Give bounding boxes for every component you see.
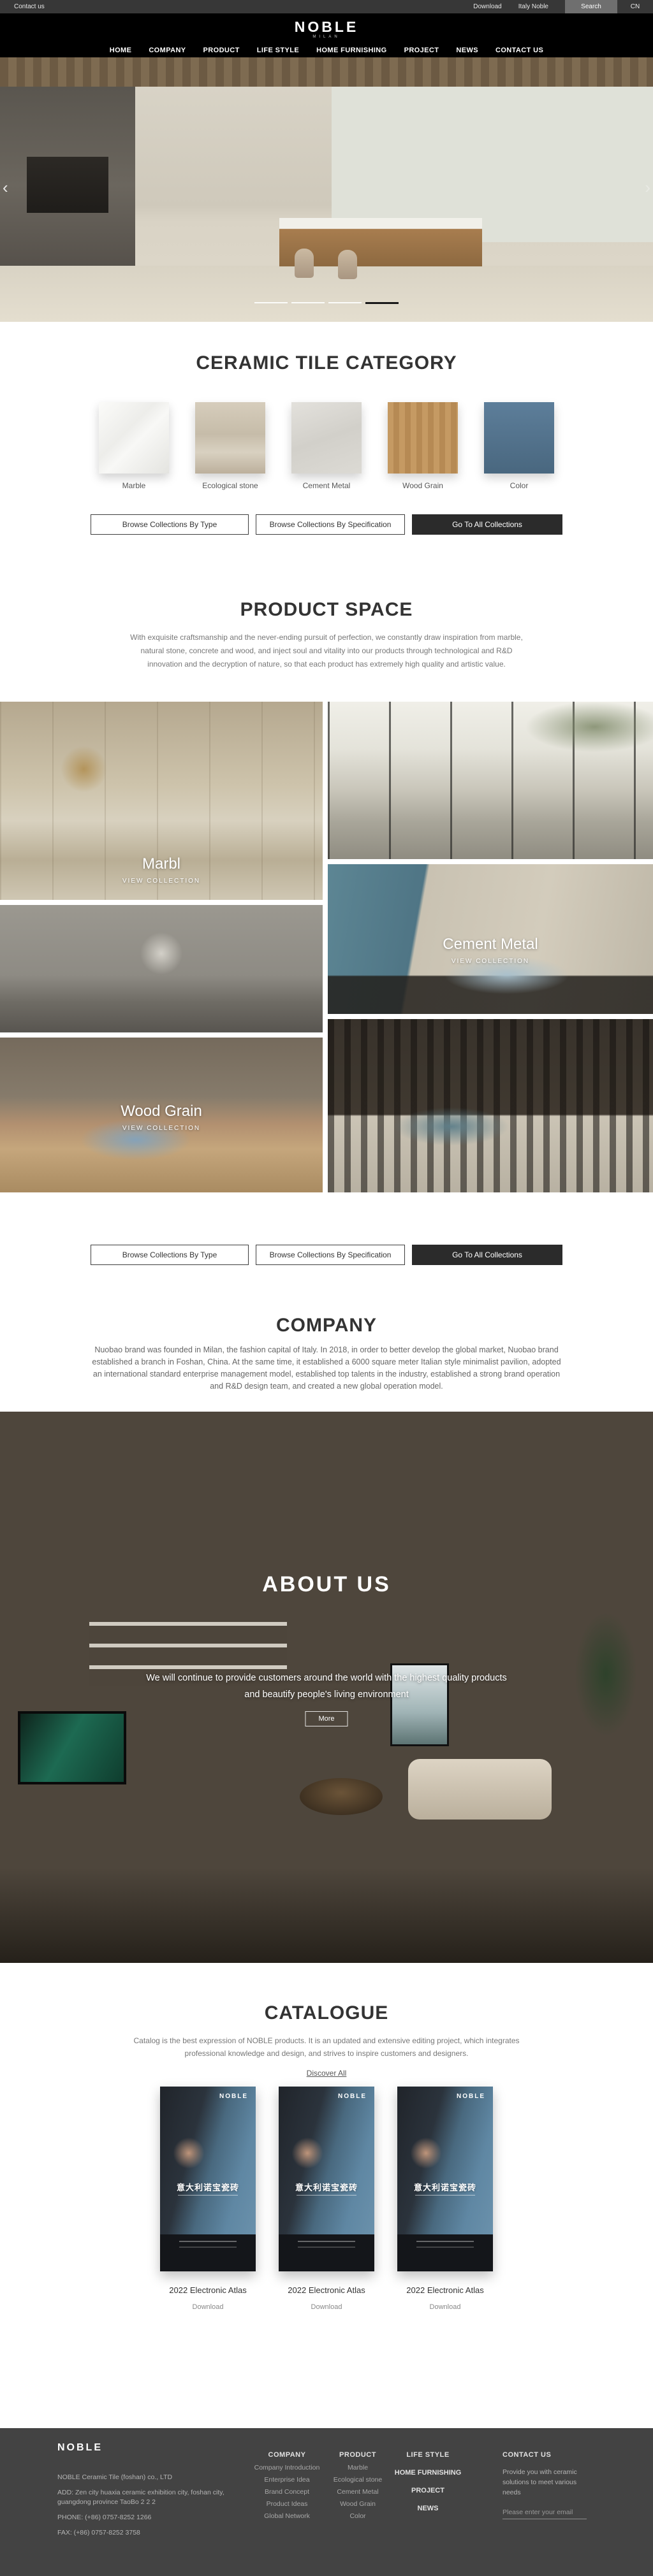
footer-link[interactable]: Company Introduction (252, 2464, 322, 2471)
footer-link[interactable]: Ecological stone (329, 2477, 386, 2483)
browse-by-type-button[interactable]: Browse Collections By Type (91, 514, 249, 535)
tile-cement-swatch (291, 402, 362, 474)
footer-column-contact: CONTACT US Provide you with ceramic solu… (503, 2451, 593, 2519)
go-all-collections-button[interactable]: Go To All Collections (412, 1245, 562, 1265)
product-space-title: PRODUCT SPACE (0, 599, 653, 621)
download-link[interactable]: Download (160, 2303, 256, 2311)
category-title: CERAMIC TILE CATEGORY (0, 352, 653, 374)
main-nav: HOME COMPANY PRODUCT LIFE STYLE HOME FUR… (0, 47, 653, 54)
page: Contact us Download Italy Noble Search C… (0, 0, 653, 2576)
download-link[interactable]: Download (279, 2303, 374, 2311)
panel-name: Wood Grain (0, 1103, 323, 1120)
company-title: COMPANY (0, 1315, 653, 1336)
tile-marble-swatch (99, 402, 169, 474)
about-photo-tv (18, 1711, 126, 1784)
carousel-next-icon[interactable]: › (645, 179, 650, 196)
carousel-prev-icon[interactable]: ‹ (3, 179, 8, 196)
view-collection-link[interactable]: VIEW COLLECTION (0, 1125, 323, 1132)
atlas-name: 2022 Electronic Atlas (279, 2285, 374, 2295)
discover-all-link[interactable]: Discover All (0, 2069, 653, 2078)
footer-phone: PHONE: (+86) 0757-8252 1266 (57, 2513, 230, 2522)
top-utility-bar: Contact us Download Italy Noble Search C… (0, 0, 653, 13)
about-title: ABOUT US (0, 1572, 653, 1597)
tile-eco-swatch (195, 402, 265, 474)
atlas-name: 2022 Electronic Atlas (397, 2285, 493, 2295)
nav-contact-us[interactable]: CONTACT US (495, 47, 543, 54)
go-all-collections-button[interactable]: Go To All Collections (412, 514, 562, 535)
cover-divider (297, 2195, 356, 2196)
about-text: We will continue to provide customers ar… (0, 1670, 653, 1703)
footer-link[interactable]: Product Ideas (252, 2501, 322, 2507)
footer-company-info: NOBLE Ceramic Tile (foshan) co., LTD ADD… (57, 2473, 230, 2543)
cover-divider (178, 2195, 238, 2196)
panel-wood-grain[interactable]: Wood Grain VIEW COLLECTION (0, 1038, 323, 1192)
footer-company-name: NOBLE Ceramic Tile (foshan) co., LTD (57, 2473, 230, 2482)
catalogue-covers: NOBLE 意大利诺宝瓷砖 2022 Electronic Atlas Down… (0, 2087, 653, 2311)
catalogue-description: Catalog is the best expression of NOBLE … (119, 2034, 534, 2060)
about-text-line1: We will continue to provide customers ar… (0, 1670, 653, 1686)
nav-home-furnishing[interactable]: HOME FURNISHING (316, 47, 387, 54)
footer-link[interactable]: Color (329, 2513, 386, 2519)
about-text-line2: and beautify people's living environment (0, 1686, 653, 1703)
product-space-section: PRODUCT SPACE With exquisite craftsmansh… (0, 548, 653, 1310)
tile-label: Color (484, 481, 554, 490)
footer-link-home-furnishing[interactable]: HOME FURNISHING (390, 2469, 466, 2477)
footer-link[interactable]: Marble (329, 2464, 386, 2471)
download-link[interactable]: Download (473, 3, 501, 10)
browse-by-spec-button[interactable]: Browse Collections By Specification (256, 1245, 405, 1265)
logo-subtext: MILAN (0, 35, 653, 39)
carousel-indicator-3[interactable] (328, 302, 362, 303)
footer-column-title: PRODUCT (329, 2451, 386, 2459)
site-footer: NOBLE NOBLE Ceramic Tile (foshan) co., L… (0, 2428, 653, 2576)
browse-by-spec-button[interactable]: Browse Collections By Specification (256, 514, 405, 535)
footer-link-news[interactable]: NEWS (390, 2505, 466, 2512)
tile-marble[interactable]: Marble (99, 402, 169, 490)
panel-marble[interactable]: Marbl VIEW COLLECTION (0, 702, 323, 900)
catalogue-cover[interactable]: NOBLE 意大利诺宝瓷砖 (160, 2087, 256, 2271)
nav-news[interactable]: NEWS (456, 47, 478, 54)
footer-contact-text: Provide you with ceramic solutions to me… (503, 2467, 593, 2498)
panel-glass-pavilion[interactable] (328, 702, 653, 859)
nav-company[interactable]: COMPANY (149, 47, 186, 54)
cover-logo-text: NOBLE (457, 2093, 485, 2100)
cover-logo-text: NOBLE (338, 2093, 367, 2100)
carousel-indicator-1[interactable] (254, 302, 288, 303)
contact-us-link[interactable]: Contact us (14, 3, 45, 10)
search-button[interactable]: Search (565, 0, 617, 13)
catalogue-item: NOBLE 意大利诺宝瓷砖 2022 Electronic Atlas Down… (160, 2087, 256, 2311)
hero-photo-ceiling (0, 57, 653, 87)
about-section: ABOUT US We will continue to provide cus… (0, 1412, 653, 1963)
category-tiles: Marble Ecological stone Cement Metal Woo… (0, 402, 653, 490)
grid-right-column: Cement Metal VIEW COLLECTION (328, 702, 653, 1192)
footer-logo: NOBLE (57, 2442, 103, 2454)
footer-link[interactable]: Cement Metal (329, 2489, 386, 2495)
about-more-button[interactable]: More (305, 1711, 348, 1726)
footer-column-title: LIFE STYLE (390, 2451, 466, 2459)
product-space-description: With exquisite craftsmanship and the nev… (122, 631, 531, 671)
cover-footer-band (397, 2234, 493, 2271)
logo-text: NOBLE (0, 19, 653, 34)
panel-wood-overlay: Wood Grain VIEW COLLECTION (0, 1103, 323, 1132)
footer-column-product: PRODUCT Marble Ecological stone Cement M… (329, 2451, 386, 2519)
nav-project[interactable]: PROJECT (404, 47, 439, 54)
site-header: NOBLE MILAN HOME COMPANY PRODUCT LIFE ST… (0, 13, 653, 57)
catalogue-section: CATALOGUE Catalog is the best expression… (0, 1963, 653, 2428)
catalogue-title: CATALOGUE (0, 2002, 653, 2024)
atlas-name: 2022 Electronic Atlas (160, 2285, 256, 2295)
footer-column-title: CONTACT US (503, 2451, 593, 2459)
language-toggle[interactable]: CN (617, 3, 653, 10)
hero-photo-stool (338, 250, 357, 279)
collections-buttons: Browse Collections By Type Browse Collec… (0, 514, 653, 535)
tile-label: Marble (99, 481, 169, 490)
about-photo-table (300, 1778, 383, 1815)
about-photo-sofa (408, 1759, 552, 1820)
cover-title-text: 意大利诺宝瓷砖 (160, 2181, 256, 2193)
footer-link[interactable]: Wood Grain (329, 2501, 386, 2507)
cover-logo-text: NOBLE (219, 2093, 248, 2100)
catalogue-item: NOBLE 意大利诺宝瓷砖 2022 Electronic Atlas Down… (279, 2087, 374, 2311)
footer-fax: FAX: (+86) 0757-8252 3758 (57, 2528, 230, 2538)
cover-divider (415, 2195, 475, 2196)
tile-color-swatch (484, 402, 554, 474)
tile-label: Cement Metal (291, 481, 362, 490)
tile-wood-grain[interactable]: Wood Grain (388, 402, 458, 490)
tile-ecological-stone[interactable]: Ecological stone (195, 402, 265, 490)
hero-photo-floor (0, 266, 653, 322)
panel-name: Marbl (0, 855, 323, 873)
collections-buttons-secondary: Browse Collections By Type Browse Collec… (0, 1245, 653, 1265)
view-collection-link[interactable]: VIEW COLLECTION (0, 878, 323, 885)
company-section: COMPANY Nuobao brand was founded in Mila… (0, 1310, 653, 1412)
tile-label: Wood Grain (388, 481, 458, 490)
footer-link[interactable]: Brand Concept (252, 2489, 322, 2495)
cover-title-text: 意大利诺宝瓷砖 (279, 2181, 374, 2193)
cover-footer-band (160, 2234, 256, 2271)
footer-link[interactable]: Global Network (252, 2513, 322, 2519)
footer-column-life-style: LIFE STYLE HOME FURNISHING PROJECT NEWS (390, 2451, 466, 2512)
nav-life-style[interactable]: LIFE STYLE (257, 47, 299, 54)
catalogue-cover[interactable]: NOBLE 意大利诺宝瓷砖 (279, 2087, 374, 2271)
grid-left-column: Marbl VIEW COLLECTION Wood Grain VIEW CO… (0, 702, 323, 1192)
hero-carousel: ‹ › (0, 57, 653, 322)
panel-cement-overlay: Cement Metal VIEW COLLECTION (328, 936, 653, 965)
tile-color[interactable]: Color (484, 402, 554, 490)
panel-marble-overlay: Marbl VIEW COLLECTION (0, 855, 323, 885)
panel-slat-wall-room[interactable] (328, 1019, 653, 1192)
catalogue-cover[interactable]: NOBLE 意大利诺宝瓷砖 (397, 2087, 493, 2271)
view-collection-link[interactable]: VIEW COLLECTION (328, 958, 653, 965)
footer-address: ADD: Zen city huaxia ceramic exhibition … (57, 2488, 230, 2507)
tile-wood-swatch (388, 402, 458, 474)
carousel-indicator-4-active[interactable] (365, 302, 399, 304)
hero-photo-stool (295, 249, 314, 278)
browse-by-type-button[interactable]: Browse Collections By Type (91, 1245, 249, 1265)
panel-name: Cement Metal (328, 936, 653, 953)
tile-cement-metal[interactable]: Cement Metal (291, 402, 362, 490)
email-input[interactable] (503, 2506, 587, 2519)
carousel-indicators (0, 302, 653, 304)
cover-footer-band (279, 2234, 374, 2271)
panel-cement-metal[interactable]: Cement Metal VIEW COLLECTION (328, 864, 653, 1014)
company-description: Nuobao brand was founded in Milan, the f… (89, 1344, 564, 1393)
footer-column-company: COMPANY Company Introduction Enterprise … (252, 2451, 322, 2519)
carousel-indicator-2[interactable] (291, 302, 325, 303)
italy-noble-link[interactable]: Italy Noble (518, 3, 548, 10)
hero-photo-fireplace (27, 157, 108, 213)
category-section: CERAMIC TILE CATEGORY Marble Ecological … (0, 322, 653, 548)
footer-link[interactable]: Enterprise Idea (252, 2477, 322, 2483)
footer-column-title: COMPANY (252, 2451, 322, 2459)
logo: NOBLE MILAN (0, 19, 653, 39)
panel-concrete-room[interactable] (0, 905, 323, 1032)
about-photo-floor (0, 1867, 653, 1963)
product-space-grid: Marbl VIEW COLLECTION Wood Grain VIEW CO… (0, 702, 653, 1192)
catalogue-item: NOBLE 意大利诺宝瓷砖 2022 Electronic Atlas Down… (397, 2087, 493, 2311)
tile-label: Ecological stone (195, 481, 265, 490)
download-link[interactable]: Download (397, 2303, 493, 2311)
footer-link-project[interactable]: PROJECT (390, 2487, 466, 2494)
nav-product[interactable]: PRODUCT (203, 47, 240, 54)
cover-title-text: 意大利诺宝瓷砖 (397, 2181, 493, 2193)
nav-home[interactable]: HOME (110, 47, 132, 54)
